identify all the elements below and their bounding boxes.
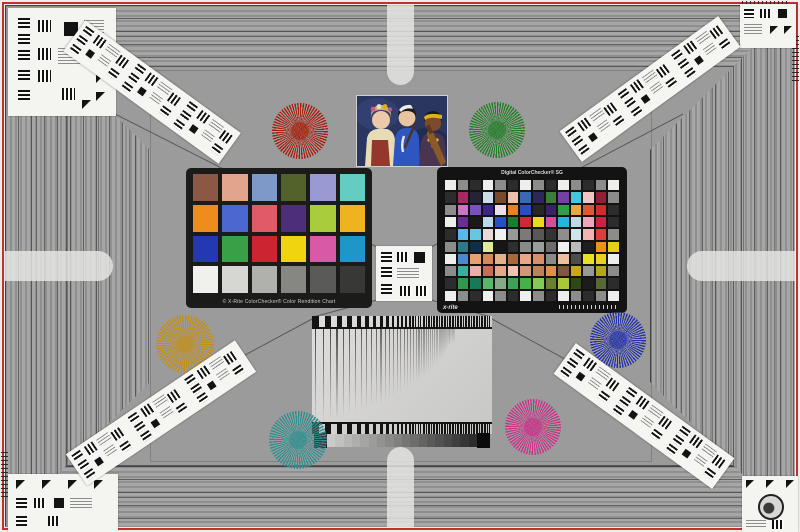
sg-color-patch <box>583 266 594 276</box>
black-square <box>588 132 598 142</box>
sweep-line <box>400 329 401 393</box>
edge-pill-bottom <box>387 447 414 527</box>
bar-target <box>75 35 88 47</box>
color-patch <box>252 266 277 293</box>
sg-color-patch <box>445 217 456 227</box>
bar-target <box>597 390 610 402</box>
fine-text-block <box>744 24 762 34</box>
wedge-mark <box>96 92 105 101</box>
bar-target <box>48 516 60 526</box>
color-patch <box>252 205 277 232</box>
sg-color-patch <box>583 242 594 252</box>
bar-target <box>658 416 672 430</box>
wedge-step <box>452 434 460 447</box>
sg-color-patch <box>458 291 469 301</box>
fine-text-block <box>650 81 664 94</box>
sg-color-patch <box>508 291 519 301</box>
sg-color-patch <box>533 291 544 301</box>
sweep-bar <box>420 316 421 327</box>
siemens-star-core <box>176 335 195 354</box>
sg-color-patch <box>445 205 456 215</box>
bar-target <box>711 454 725 468</box>
bar-target <box>572 349 585 361</box>
sg-color-patch <box>571 242 582 252</box>
sweep-line <box>397 329 398 395</box>
wedge-step <box>444 434 452 447</box>
color-patch <box>340 174 365 201</box>
sg-color-patch <box>596 278 607 288</box>
bar-target <box>84 468 97 480</box>
siemens-star-core <box>488 121 506 139</box>
sg-color-patch <box>558 192 569 202</box>
sg-color-patch <box>483 266 494 276</box>
wedge-step <box>385 434 393 447</box>
color-patch <box>222 174 247 201</box>
sg-color-patch <box>533 278 544 288</box>
sg-color-patch <box>546 180 557 190</box>
black-square <box>641 94 651 104</box>
black-square <box>694 56 704 66</box>
colorchecker-sg-ruler <box>559 305 617 309</box>
bar-target <box>167 92 181 106</box>
bar-target <box>612 405 625 417</box>
bar-target <box>684 67 697 79</box>
bar-target <box>665 443 678 455</box>
sg-color-patch <box>596 217 607 227</box>
bar-target <box>18 50 30 60</box>
wedge-step <box>410 434 418 447</box>
siemens-star-red <box>272 103 328 159</box>
fine-text-block <box>98 54 112 67</box>
sg-color-patch <box>608 254 619 264</box>
sg-color-patch <box>470 229 481 239</box>
bar-target <box>172 119 185 131</box>
sweep-line <box>323 329 324 422</box>
siemens-star-magenta <box>505 399 561 455</box>
sg-color-patch <box>583 180 594 190</box>
sg-color-patch <box>608 205 619 215</box>
frequency-sweep-chart <box>312 316 492 434</box>
sg-color-patch <box>495 205 506 215</box>
fine-text-block <box>201 129 215 142</box>
black-square <box>576 372 586 382</box>
colorchecker-classic-chart: © X-Rite ColorChecker® Color Rendition C… <box>186 168 372 308</box>
black-square <box>85 49 95 59</box>
wedge-mark <box>770 26 778 34</box>
sg-color-patch <box>458 217 469 227</box>
sg-color-patch <box>445 254 456 264</box>
wedge-mark <box>42 480 51 489</box>
sweep-line <box>454 329 455 343</box>
sg-color-patch <box>520 217 531 227</box>
colorchecker-sg-title: Digital ColorChecker® SG <box>437 170 627 176</box>
sg-color-patch <box>583 192 594 202</box>
color-patch <box>281 174 306 201</box>
bar-target <box>179 110 192 122</box>
sg-color-patch <box>458 192 469 202</box>
bar-target <box>176 402 189 414</box>
sg-color-patch <box>571 266 582 276</box>
sweep-line <box>371 329 372 407</box>
color-patch <box>340 236 365 263</box>
sweep-line <box>416 329 417 383</box>
sweep-line <box>343 329 344 417</box>
sg-color-patch <box>495 229 506 239</box>
sweep-bar <box>347 316 352 327</box>
sweep-bar <box>337 316 342 327</box>
sg-color-patch <box>520 229 531 239</box>
sg-color-patch <box>608 278 619 288</box>
bar-target <box>650 429 663 441</box>
sweep-line <box>418 329 419 381</box>
sg-color-patch <box>546 205 557 215</box>
sweep-line <box>404 329 405 391</box>
sweep-line <box>380 329 381 403</box>
sg-color-patch <box>546 278 557 288</box>
sg-color-patch <box>596 242 607 252</box>
sg-color-patch <box>495 291 506 301</box>
left-figure-vest <box>371 140 390 166</box>
wedge-step <box>469 434 477 447</box>
sg-color-patch <box>558 180 569 190</box>
sg-color-patch <box>470 192 481 202</box>
siemens-star-core <box>524 418 542 436</box>
bar-target <box>16 498 27 508</box>
wedge-step <box>327 434 335 447</box>
wedge-mark <box>786 480 794 488</box>
siemens-star-core <box>609 331 627 349</box>
bar-target <box>219 130 233 144</box>
sg-color-patch <box>445 229 456 239</box>
edge-pill-top <box>387 5 414 85</box>
wedge-step <box>402 434 410 447</box>
sg-color-patch <box>520 180 531 190</box>
sweep-line <box>336 329 337 419</box>
wedge-step <box>460 434 468 447</box>
sweep-line <box>421 329 422 379</box>
sg-color-patch <box>495 266 506 276</box>
bar-target <box>82 26 95 38</box>
edge-pill-left <box>5 251 113 281</box>
sg-color-patch <box>596 180 607 190</box>
black-square <box>414 252 425 263</box>
bar-target <box>38 70 51 82</box>
sg-color-patch <box>508 229 519 239</box>
sg-color-patch <box>571 229 582 239</box>
wedge-step <box>344 434 352 447</box>
sg-color-patch <box>596 254 607 264</box>
sg-color-patch <box>533 229 544 239</box>
sg-color-patch <box>520 242 531 252</box>
bar-target <box>159 105 172 117</box>
sg-color-patch <box>546 254 557 264</box>
wedge-mark <box>746 480 754 488</box>
sweep-bar <box>392 316 395 327</box>
sg-color-patch <box>533 192 544 202</box>
sg-color-patch <box>571 205 582 215</box>
sweep-line <box>410 329 411 387</box>
sg-color-patch <box>470 254 481 264</box>
color-patch <box>281 236 306 263</box>
portrait-test-image <box>357 96 447 166</box>
bar-target <box>666 77 679 89</box>
bar-target <box>381 284 392 294</box>
wedge-mark <box>82 100 91 109</box>
sg-color-patch <box>520 192 531 202</box>
sg-color-patch <box>508 278 519 288</box>
sweep-line <box>385 329 386 401</box>
sweep-line <box>413 329 414 385</box>
left-figure-face <box>372 111 390 129</box>
bar-target <box>718 38 731 50</box>
sweep-bar <box>412 316 414 327</box>
bar-target <box>34 498 46 508</box>
sg-color-patch <box>558 229 569 239</box>
bar-target <box>760 9 771 18</box>
bar-target <box>62 88 75 100</box>
bar-target <box>381 252 392 262</box>
sg-color-patch <box>495 254 506 264</box>
center-resolution-card <box>376 246 432 301</box>
sg-color-patch <box>495 217 506 227</box>
wedge-mark <box>784 26 792 34</box>
sg-color-patch <box>458 242 469 252</box>
sg-color-patch <box>558 291 569 301</box>
fine-text-block <box>103 444 117 457</box>
bar-target <box>210 143 223 155</box>
black-square <box>628 410 638 420</box>
sweep-line <box>376 329 377 405</box>
sweep-line <box>361 329 362 411</box>
sg-color-patch <box>596 291 607 301</box>
sweep-line <box>426 329 427 375</box>
sg-color-patch <box>608 192 619 202</box>
sweep-bar <box>405 316 407 327</box>
fine-text-block <box>694 454 708 467</box>
sg-color-patch <box>458 180 469 190</box>
sweep-line <box>349 329 350 415</box>
sg-color-patch <box>483 278 494 288</box>
bar-target <box>115 55 129 69</box>
color-patch <box>193 205 218 232</box>
bar-target <box>121 81 134 93</box>
sg-color-patch <box>608 291 619 301</box>
bar-target <box>703 467 716 479</box>
sg-color-patch <box>508 254 519 264</box>
wedge-end-square <box>477 433 490 448</box>
bar-target <box>232 364 245 376</box>
sg-color-patch <box>495 278 506 288</box>
sg-color-patch <box>445 278 456 288</box>
bar-target <box>133 63 146 75</box>
sweep-bar <box>312 316 319 327</box>
wedge-step <box>377 434 385 447</box>
bar-target <box>185 101 198 113</box>
sweep-line <box>366 329 367 409</box>
sg-color-patch <box>520 205 531 215</box>
sg-color-patch <box>571 291 582 301</box>
sg-color-patch <box>546 291 557 301</box>
fine-text-block <box>588 377 602 390</box>
bar-target <box>196 392 209 404</box>
sg-color-patch <box>520 291 531 301</box>
sweep-bar <box>325 316 331 327</box>
bar-target <box>140 403 155 417</box>
sg-color-patch <box>483 229 494 239</box>
color-patch <box>340 266 365 293</box>
sg-color-patch <box>571 192 582 202</box>
sg-color-patch <box>470 205 481 215</box>
sg-color-patch <box>608 266 619 276</box>
wedge-step <box>369 434 377 447</box>
color-patch <box>340 205 365 232</box>
color-patch <box>222 236 247 263</box>
sg-color-patch <box>596 205 607 215</box>
sweep-bars-top <box>312 316 492 327</box>
fine-text-block <box>703 43 717 56</box>
sg-color-patch <box>483 242 494 252</box>
resolution-card-top-right <box>740 4 796 48</box>
sweep-gradient-field <box>312 329 492 422</box>
color-patch <box>310 236 335 263</box>
sg-color-patch <box>558 217 569 227</box>
fine-text-block <box>397 268 419 280</box>
wedge-step <box>394 434 402 447</box>
sg-color-patch <box>508 242 519 252</box>
sweep-bar <box>409 316 411 327</box>
sg-color-patch <box>483 205 494 215</box>
fine-text-block <box>70 498 92 510</box>
wedge-step <box>360 434 368 447</box>
gray-step-wedge <box>314 433 490 448</box>
bar-target <box>18 70 30 80</box>
sg-color-patch <box>470 266 481 276</box>
sg-color-patch <box>608 242 619 252</box>
sweep-bar <box>401 316 403 327</box>
black-square <box>681 449 691 459</box>
middle-figure-dress <box>393 128 420 166</box>
sg-color-patch <box>546 192 557 202</box>
sg-color-patch <box>445 180 456 190</box>
sg-color-patch <box>458 205 469 215</box>
color-patch <box>252 236 277 263</box>
sg-color-patch <box>596 266 607 276</box>
fine-text-block <box>149 92 163 105</box>
sg-color-patch <box>533 205 544 215</box>
sg-color-patch <box>445 266 456 276</box>
resolution-card-bottom-right <box>742 476 798 532</box>
sg-color-patch <box>483 217 494 227</box>
wedge-mark <box>94 480 103 489</box>
sg-color-patch <box>608 229 619 239</box>
sg-color-patch <box>571 254 582 264</box>
siemens-star-green <box>469 102 525 158</box>
bar-target <box>671 434 684 446</box>
sg-color-patch <box>583 291 594 301</box>
fine-text-block <box>597 119 611 132</box>
sg-color-patch <box>458 229 469 239</box>
sg-color-patch <box>495 180 506 190</box>
black-square <box>137 87 147 97</box>
sg-color-patch <box>571 180 582 190</box>
colorchecker-classic-grid <box>193 174 365 293</box>
fine-text-block <box>746 520 766 528</box>
camera-test-chart-photo: © X-Rite ColorChecker® Color Rendition C… <box>0 0 800 532</box>
sweep-line <box>315 329 316 422</box>
wedge-step <box>427 434 435 447</box>
sweep-line <box>393 329 394 397</box>
sweep-bar <box>365 316 369 327</box>
siemens-star-core <box>291 122 309 140</box>
resolution-card-bottom-left <box>8 474 118 532</box>
color-patch <box>281 205 306 232</box>
color-patch <box>222 205 247 232</box>
sg-color-patch <box>445 291 456 301</box>
sg-color-patch <box>558 278 569 288</box>
bar-target <box>16 516 27 526</box>
color-patch <box>281 266 306 293</box>
wedge-mark <box>766 480 774 488</box>
bar-target <box>606 377 620 391</box>
sweep-bar <box>424 316 425 327</box>
sg-color-patch <box>533 180 544 190</box>
sweep-bar <box>386 316 389 327</box>
black-square <box>151 419 161 429</box>
color-patch <box>310 174 335 201</box>
sg-color-patch <box>608 180 619 190</box>
sg-color-patch <box>596 229 607 239</box>
sg-color-patch <box>483 254 494 264</box>
bar-target <box>559 366 572 378</box>
sweep-bar <box>423 316 424 327</box>
sg-color-patch <box>546 266 557 276</box>
sg-color-patch <box>470 180 481 190</box>
color-patch <box>310 205 335 232</box>
magnifier-circle <box>758 494 784 520</box>
bar-target <box>140 430 153 442</box>
bar-target <box>84 441 99 455</box>
sg-color-patch <box>508 217 519 227</box>
bar-target <box>613 115 626 127</box>
bar-target <box>127 72 140 84</box>
bar-target <box>400 286 412 296</box>
bar-target <box>38 48 51 60</box>
sg-color-patch <box>596 192 607 202</box>
sweep-bar <box>357 316 361 327</box>
colorchecker-sg-grid <box>445 180 619 301</box>
sweep-line <box>330 329 331 421</box>
sg-color-patch <box>508 180 519 190</box>
black-square <box>94 457 104 467</box>
bar-target <box>397 252 409 262</box>
bar-target <box>631 106 644 118</box>
sg-color-patch <box>458 266 469 276</box>
sg-color-patch <box>533 266 544 276</box>
fine-text-block <box>641 415 655 428</box>
black-square <box>207 381 217 391</box>
sg-color-patch <box>508 266 519 276</box>
wedge-step <box>335 434 343 447</box>
sg-color-patch <box>583 254 594 264</box>
black-square <box>54 498 64 508</box>
color-patch <box>193 266 218 293</box>
sg-color-patch <box>508 205 519 215</box>
sg-color-patch <box>470 278 481 288</box>
wedge-step <box>419 434 427 447</box>
color-patch <box>193 174 218 201</box>
edge-pill-right <box>687 251 795 281</box>
color-patch <box>310 266 335 293</box>
